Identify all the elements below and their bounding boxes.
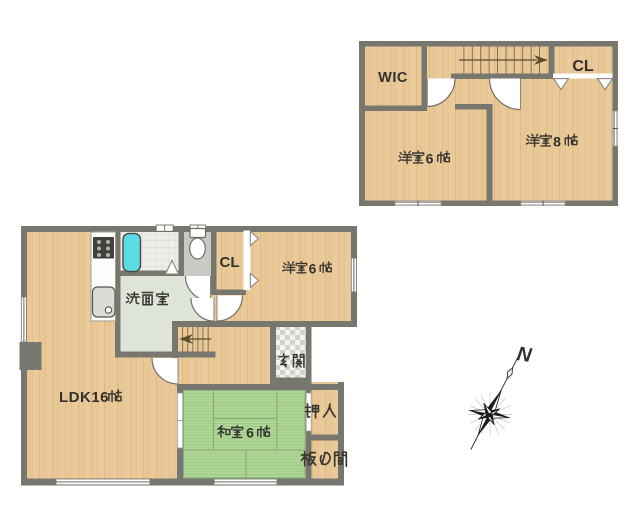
svg-text:6: 6 [426, 151, 434, 167]
svg-text:CL: CL [572, 58, 594, 75]
svg-text:LDK16: LDK16 [59, 389, 109, 406]
svg-text:8: 8 [553, 134, 561, 150]
svg-text:WIC: WIC [378, 70, 408, 86]
svg-text:N: N [515, 343, 533, 367]
svg-text:CL: CL [220, 254, 240, 271]
svg-text:6: 6 [309, 262, 317, 277]
svg-text:6: 6 [246, 425, 254, 441]
